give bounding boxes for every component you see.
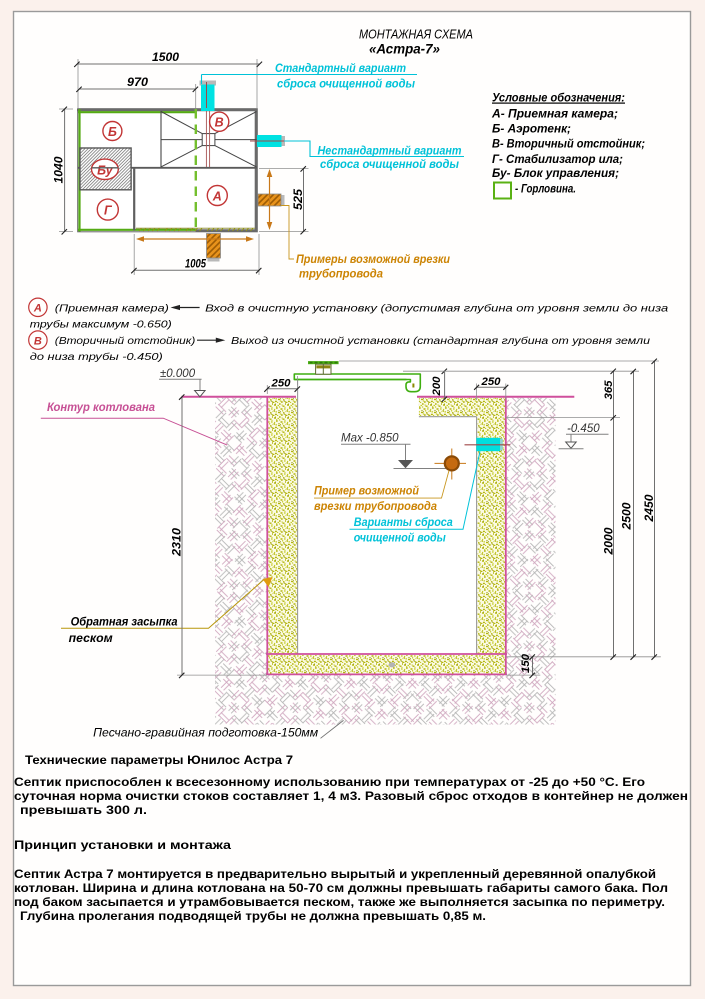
svg-text:Max -0.850: Max -0.850 bbox=[341, 433, 399, 445]
svg-text:365: 365 bbox=[603, 380, 615, 400]
svg-text:±0.000: ±0.000 bbox=[160, 368, 196, 380]
svg-text:очищенной воды: очищенной воды bbox=[354, 532, 446, 544]
svg-text:Стандартный вариант: Стандартный вариант bbox=[275, 63, 406, 75]
svg-text:150: 150 bbox=[520, 653, 532, 673]
svg-text:Г: Г bbox=[104, 203, 113, 217]
svg-text:(Приемная камера): (Приемная камера) bbox=[55, 302, 169, 314]
svg-text:В: В bbox=[215, 116, 224, 130]
svg-text:А- Приемная камера;: А- Приемная камера; bbox=[491, 108, 618, 120]
svg-text:-0.450: -0.450 bbox=[567, 423, 600, 435]
svg-text:1500: 1500 bbox=[152, 50, 179, 64]
svg-text:МОНТАЖНАЯ СХЕМА: МОНТАЖНАЯ СХЕМА bbox=[359, 27, 473, 42]
svg-text:суточная норма очистки стоков: суточная норма очистки стоков составляет… bbox=[14, 791, 688, 803]
svg-text:Пример возможной: Пример возможной bbox=[314, 486, 419, 498]
svg-text:250: 250 bbox=[270, 377, 291, 389]
svg-text:200: 200 bbox=[431, 376, 443, 397]
svg-text:Г- Стабилизатор ила;: Г- Стабилизатор ила; bbox=[492, 154, 623, 166]
svg-text:А: А bbox=[33, 303, 42, 315]
svg-text:В: В bbox=[34, 335, 42, 347]
svg-text:трубопровода: трубопровода bbox=[299, 269, 384, 281]
svg-text:Обратная засыпка: Обратная засыпка bbox=[71, 617, 179, 629]
svg-text:Септик приспособлен к всесезон: Септик приспособлен к всесезонному испол… bbox=[14, 777, 645, 789]
svg-text:Выход из очистной установки (с: Выход из очистной установки (стандартная… bbox=[231, 335, 650, 347]
svg-text:1005: 1005 bbox=[185, 257, 206, 271]
svg-text:песком: песком bbox=[69, 633, 114, 645]
svg-text:- Горловина.: - Горловина. bbox=[515, 184, 576, 196]
svg-text:Нестандартный вариант: Нестандартный вариант bbox=[318, 146, 462, 158]
svg-text:котлован. Ширина и длина котло: котлован. Ширина и длина котлована на 50… bbox=[14, 883, 668, 895]
svg-text:сброса очищенной воды: сброса очищенной воды bbox=[277, 79, 415, 91]
svg-text:Варианты сброса: Варианты сброса bbox=[354, 517, 454, 529]
svg-text:2450: 2450 bbox=[644, 494, 656, 523]
svg-text:Бу: Бу bbox=[97, 163, 114, 177]
svg-text:врезки трубопровода: врезки трубопровода bbox=[314, 501, 438, 513]
svg-text:Б- Аэротенк;: Б- Аэротенк; bbox=[492, 123, 571, 135]
svg-text:трубы максимум -0.650): трубы максимум -0.650) bbox=[30, 318, 172, 330]
svg-text:Технические параметры Юнилос А: Технические параметры Юнилос Астра 7 bbox=[25, 755, 293, 767]
svg-text:2500: 2500 bbox=[622, 502, 634, 531]
svg-text:Глубина пролегания подводящей: Глубина пролегания подводящей трубы не д… bbox=[20, 911, 486, 923]
svg-text:1040: 1040 bbox=[52, 156, 66, 183]
svg-text:под баком засыпается и утрамбо: под баком засыпается и утрамбовывается п… bbox=[14, 897, 665, 909]
svg-text:Примеры возможной врезки: Примеры возможной врезки bbox=[296, 254, 450, 266]
svg-text:Вход в очистную установку (доп: Вход в очистную установку (допустимая гл… bbox=[205, 302, 668, 314]
svg-text:2310: 2310 bbox=[172, 527, 184, 557]
svg-text:(Вторичный отстойник): (Вторичный отстойник) bbox=[55, 335, 196, 347]
svg-text:сброса очищенной воды: сброса очищенной воды bbox=[320, 159, 459, 171]
svg-text:525: 525 bbox=[291, 189, 305, 210]
svg-text:250: 250 bbox=[480, 376, 501, 388]
svg-text:2000: 2000 bbox=[604, 527, 616, 556]
svg-text:970: 970 bbox=[127, 75, 148, 89]
svg-text:превышать 300 л.: превышать 300 л. bbox=[20, 805, 147, 817]
svg-text:«Астра-7»: «Астра-7» bbox=[369, 42, 440, 57]
svg-text:Септик Астра 7 монтируется в п: Септик Астра 7 монтируется в предварител… bbox=[14, 869, 656, 881]
svg-text:А: А bbox=[212, 189, 222, 203]
svg-text:Б: Б bbox=[108, 125, 117, 139]
svg-text:Песчано-гравийная подготовка-1: Песчано-гравийная подготовка-150мм bbox=[93, 728, 318, 740]
svg-text:до низа трубы -0.450): до низа трубы -0.450) bbox=[30, 351, 163, 363]
svg-text:Принцип установки и монтажа: Принцип установки и монтажа bbox=[14, 840, 232, 852]
svg-text:Условные обозначения:: Условные обозначения: bbox=[492, 91, 625, 105]
svg-text:Контур котлована: Контур котлована bbox=[47, 402, 156, 414]
svg-text:Бу- Блок управления;: Бу- Блок управления; bbox=[492, 168, 619, 180]
svg-text:В- Вторичный отстойник;: В- Вторичный отстойник; bbox=[492, 139, 645, 151]
